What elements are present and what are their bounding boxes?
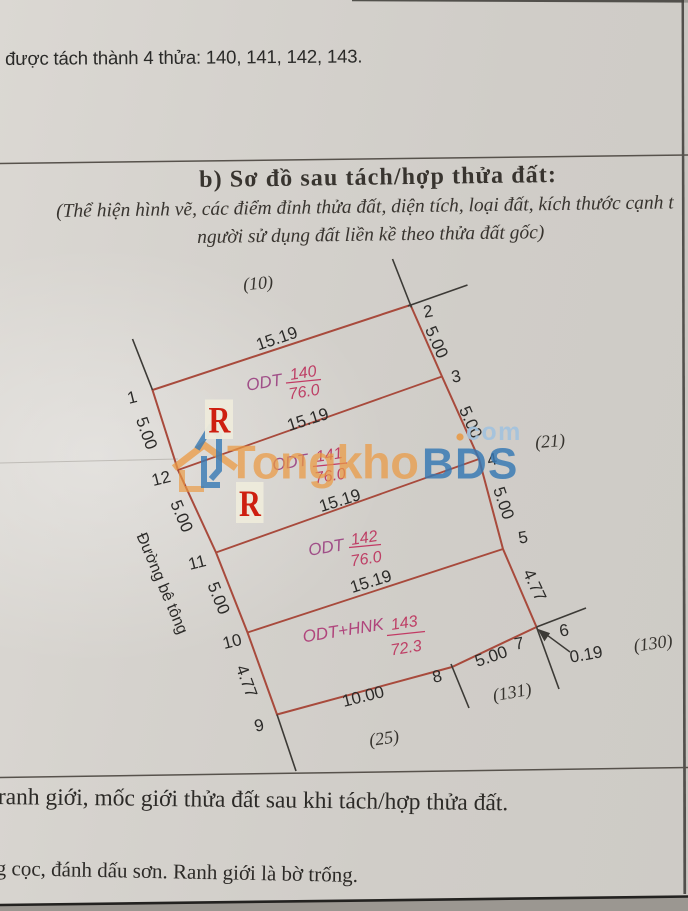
svg-text:72.3: 72.3	[390, 638, 424, 660]
svg-text:15.19: 15.19	[317, 485, 363, 516]
svg-text:(21): (21)	[534, 430, 566, 454]
svg-text:15.19: 15.19	[285, 404, 331, 435]
svg-text:6: 6	[558, 620, 571, 640]
svg-text:7: 7	[513, 633, 526, 653]
svg-text:12: 12	[150, 467, 173, 490]
svg-text:(25): (25)	[368, 726, 401, 751]
svg-text:(131): (131)	[491, 679, 533, 706]
svg-text:com: com	[466, 418, 522, 446]
svg-text:4.77: 4.77	[232, 662, 261, 700]
svg-text:5.00: 5.00	[472, 642, 509, 671]
svg-text:(130): (130)	[632, 630, 674, 656]
svg-text:5.00: 5.00	[132, 414, 161, 452]
svg-text:5.00: 5.00	[421, 323, 452, 361]
svg-text:(10): (10)	[242, 272, 274, 296]
svg-text:BDS: BDS	[422, 440, 519, 489]
svg-text:143: 143	[390, 613, 419, 634]
svg-text:Đường bê tông: Đường bê tông	[133, 530, 191, 636]
svg-text:76.0: 76.0	[288, 382, 322, 404]
svg-text:5: 5	[517, 527, 530, 547]
svg-text:10: 10	[221, 630, 244, 653]
svg-text:10.00: 10.00	[340, 682, 386, 711]
svg-text:ODT: ODT	[245, 370, 285, 395]
svg-text:9: 9	[252, 715, 265, 736]
svg-text:0.19: 0.19	[568, 642, 604, 666]
svg-text:R: R	[239, 484, 261, 524]
svg-text:1: 1	[125, 387, 139, 408]
svg-text:76.0: 76.0	[350, 549, 384, 571]
svg-text:ODT+HNK: ODT+HNK	[301, 615, 385, 647]
svg-text:ODT: ODT	[307, 535, 347, 560]
svg-text:Tongkho: Tongkho	[227, 436, 418, 489]
svg-text:R: R	[209, 401, 231, 441]
svg-text:11: 11	[186, 551, 208, 574]
svg-text:2: 2	[422, 301, 435, 321]
svg-text:3: 3	[450, 366, 463, 386]
